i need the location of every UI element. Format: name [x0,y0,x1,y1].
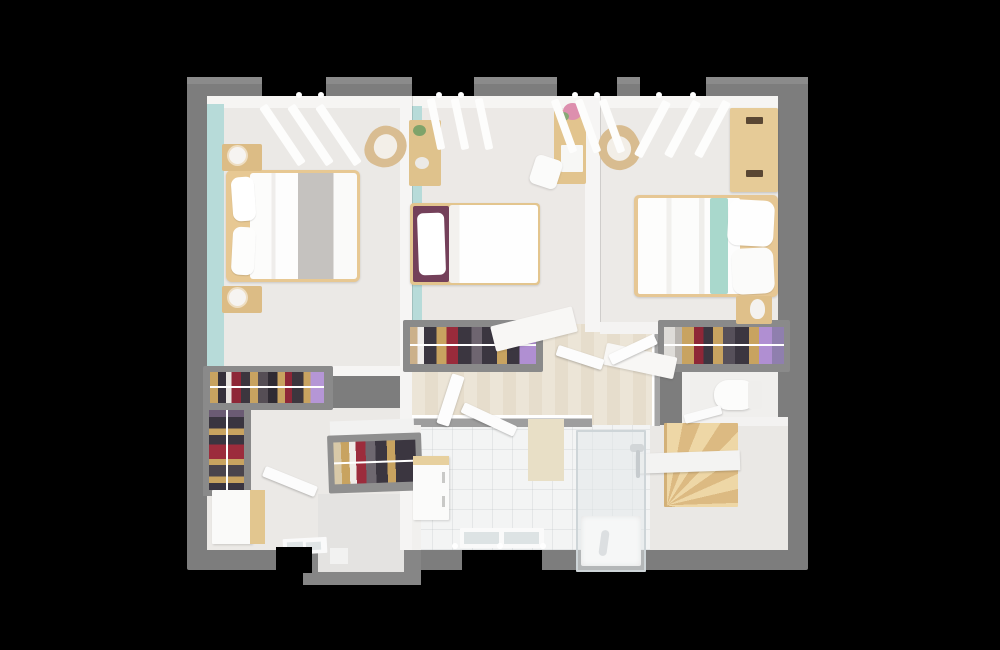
window-hardware-dot-4 [458,92,464,98]
window-gap-3 [557,77,617,97]
window-hardware-dot-1 [296,92,302,98]
bath-window-gap [462,550,542,570]
bath-window-pane-1 [464,532,499,544]
lamp-right [750,299,765,319]
floorplan-render [0,0,1000,650]
dresser-right-handle-top [746,117,763,124]
bath-window-dot-2 [497,543,503,549]
window-gap-2 [412,77,474,97]
shower-tray [581,516,641,566]
bath-window-dot-3 [540,543,546,549]
vase-mid [415,157,429,169]
bl-cabinet-wood-side [250,490,265,544]
bath-window-pane-2 [504,532,539,544]
bath-cabinet-handle-2 [442,496,445,507]
bed-left-pillow-top [230,176,256,221]
wall-stairroom-north [600,322,662,334]
bath-cabinet-top [413,456,449,465]
window-hardware-dot-5 [572,92,578,98]
bed-right-pillow-top [727,199,775,247]
dresser-right-handle-bottom [746,170,763,177]
wall-bathroom-beige-panel [528,419,564,481]
bed-left-pillow-bottom [231,226,256,275]
closet-right-rail [664,344,784,346]
shower-bar [636,450,640,478]
bed-right-teal-throw [710,198,728,294]
closet-left-side-rail [226,410,228,490]
window-hardware-dot-7 [656,92,662,98]
bed-left-linen [250,173,357,279]
wall-bl-north-segment [333,366,400,376]
bath-cabinet [413,456,449,520]
window-hardware-dot-8 [690,92,696,98]
bed-right-pillow-bottom [731,247,775,295]
lamp-left-bottom [229,289,246,306]
window-hardware-dot-2 [318,92,324,98]
closet-left-rail [210,386,324,388]
bed-mid-pillow [417,213,446,276]
plant-mid [413,125,426,136]
bl-cabinet [212,490,252,544]
entry-gap-bottom [276,547,312,573]
toilet-tank [748,381,762,409]
window-gap-1 [262,77,326,97]
stairs-landing [636,450,741,474]
lamp-left-top [229,147,246,164]
bay-door-panel [330,548,348,564]
bath-window-dot-1 [452,543,458,549]
window-hardware-dot-6 [594,92,600,98]
bath-cabinet-handle-1 [442,472,445,483]
bed-mid-duvet [449,205,538,283]
window-hardware-dot-3 [436,92,442,98]
window-gap-4 [640,77,706,97]
